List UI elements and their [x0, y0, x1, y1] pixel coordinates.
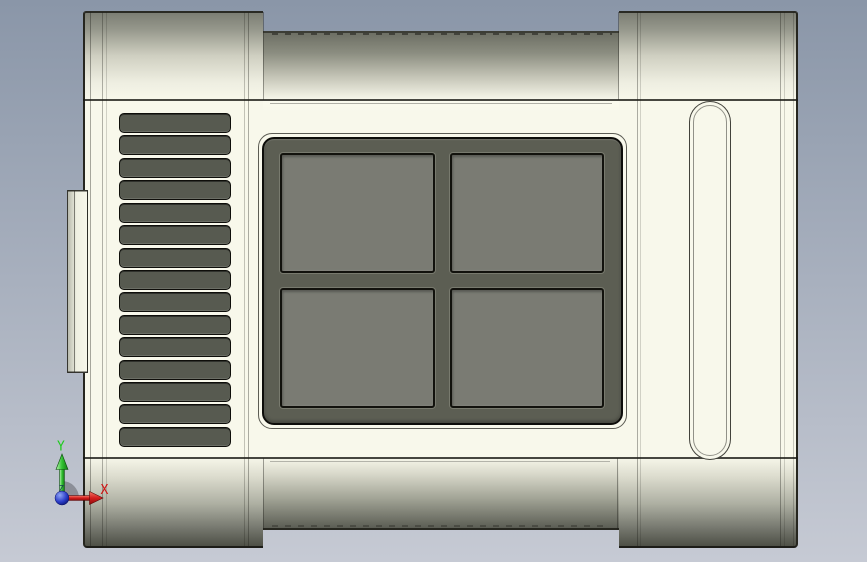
vent-slat[interactable]	[119, 225, 231, 245]
vent-slat[interactable]	[119, 404, 231, 424]
vent-slat[interactable]	[119, 382, 231, 402]
x-axis-label: X	[101, 483, 109, 498]
right-panel-line-2	[640, 12, 641, 547]
vent-slat[interactable]	[119, 292, 231, 312]
vent-slat[interactable]	[119, 203, 231, 223]
y-axis-label: Y	[57, 440, 65, 455]
right-crease-line-2	[784, 12, 785, 547]
left-flange-tab[interactable]	[67, 190, 88, 373]
vent-slat[interactable]	[119, 337, 231, 357]
vent-slat[interactable]	[119, 158, 231, 178]
window-pane[interactable]	[450, 153, 605, 273]
window-pane[interactable]	[280, 153, 435, 273]
top-edge-tick-marks	[272, 33, 612, 35]
bottom-edge-tick-marks	[272, 525, 608, 527]
right-edge-inner-line	[793, 12, 794, 547]
vent-slat[interactable]	[119, 360, 231, 380]
window-frame[interactable]	[262, 137, 623, 425]
vent-slat[interactable]	[119, 270, 231, 290]
vent-slat[interactable]	[119, 315, 231, 335]
upper-fillet-line	[270, 103, 612, 104]
lower-fillet-line	[270, 461, 610, 462]
cad-viewport[interactable]: Z Y X	[0, 0, 867, 562]
top-notch-left-wall	[263, 12, 264, 100]
vent-slat[interactable]	[119, 248, 231, 268]
vent-slat[interactable]	[119, 113, 231, 133]
window-pane[interactable]	[450, 288, 605, 408]
orientation-triad: Z Y X	[40, 435, 120, 515]
vent-slat[interactable]	[119, 427, 231, 447]
lower-crease-line	[83, 457, 798, 459]
bottom-notch-right-wall	[617, 458, 618, 530]
upper-crease-line	[83, 99, 798, 101]
origin-sphere	[55, 491, 69, 505]
y-axis-arrowhead	[56, 454, 68, 470]
vent-grille[interactable]	[119, 113, 231, 447]
vent-slat[interactable]	[119, 180, 231, 200]
top-notch-right-wall	[618, 12, 619, 100]
left-panel-line-2	[248, 12, 249, 547]
side-rib-slot[interactable]	[689, 101, 731, 460]
right-crease-line-1	[780, 12, 781, 547]
left-panel-line-1	[244, 12, 245, 547]
right-panel-line-1	[637, 12, 638, 547]
bottom-notch-left-wall	[263, 458, 264, 530]
window-pane[interactable]	[280, 288, 435, 408]
vent-slat[interactable]	[119, 135, 231, 155]
